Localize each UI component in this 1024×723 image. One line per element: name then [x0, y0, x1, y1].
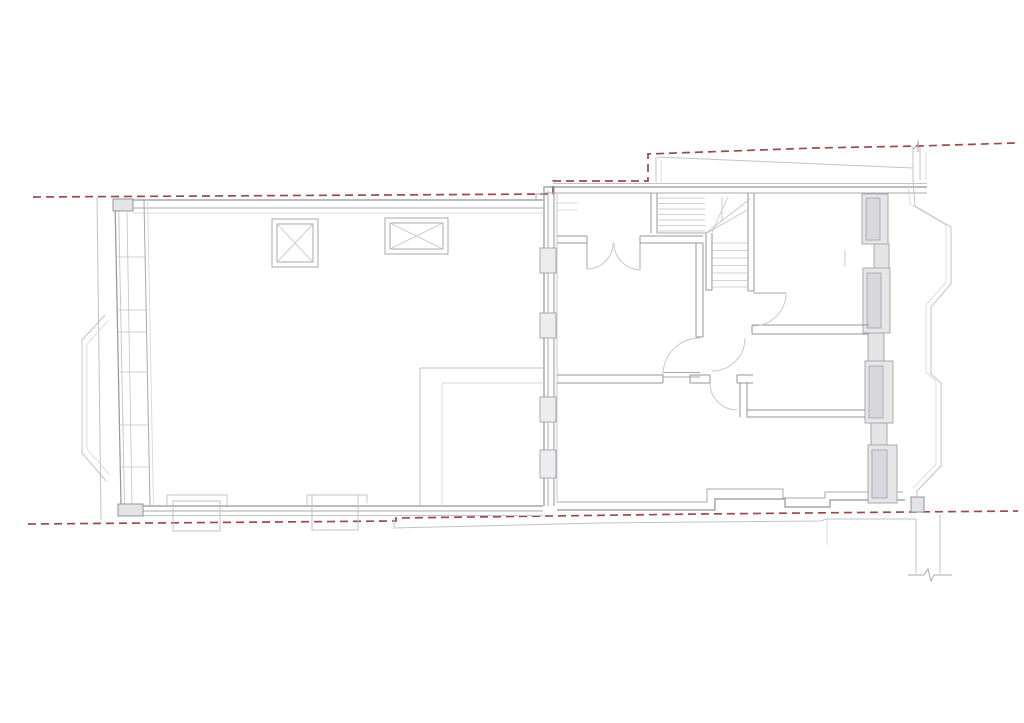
pier: [118, 504, 143, 516]
door-arc: [710, 383, 737, 410]
party-wall-window: [540, 248, 556, 273]
right-bay-outline: [913, 180, 951, 499]
stair-winder: [707, 209, 749, 233]
left-roof-left-wall: [115, 200, 121, 505]
floor-plan-page: [0, 0, 1024, 723]
double-door-arc: [587, 243, 613, 269]
site-boundary-red-top: [33, 143, 1016, 197]
left-roof-left-wall: [127, 212, 132, 505]
right-bottom-wall: [557, 499, 905, 510]
window-mullion-block: [868, 333, 884, 361]
window-unit: [869, 366, 883, 418]
right-bay-outline-inner: [908, 183, 946, 488]
door-arc: [663, 338, 700, 375]
window-unit: [872, 450, 887, 498]
window-mullion-block: [874, 244, 889, 268]
party-wall-window: [540, 397, 556, 422]
site-boundary-red-bottom: [28, 511, 1018, 524]
party-wall-window: [540, 313, 556, 338]
site-line-top-right: [657, 157, 913, 168]
left-roof-left-wall: [148, 200, 154, 505]
left-bay-outline: [82, 315, 106, 481]
double-door-arc: [614, 243, 640, 270]
window-mullion-block: [871, 423, 887, 445]
pier: [113, 199, 133, 211]
party-wall-window: [540, 450, 556, 478]
garden-boundary-line: [394, 518, 916, 573]
left-roof-left-wall: [119, 200, 125, 505]
break-mark: [924, 569, 934, 581]
window-unit: [866, 198, 880, 240]
left-roof-left-wall: [144, 200, 150, 505]
stair-winder: [712, 197, 728, 232]
stair-winder: [706, 199, 750, 233]
door-arc: [712, 338, 745, 371]
pier: [911, 497, 924, 512]
window-unit: [867, 273, 881, 328]
door-arc: [753, 293, 786, 326]
porch-outline: [312, 495, 358, 530]
floor-plan-svg: [0, 0, 1024, 723]
